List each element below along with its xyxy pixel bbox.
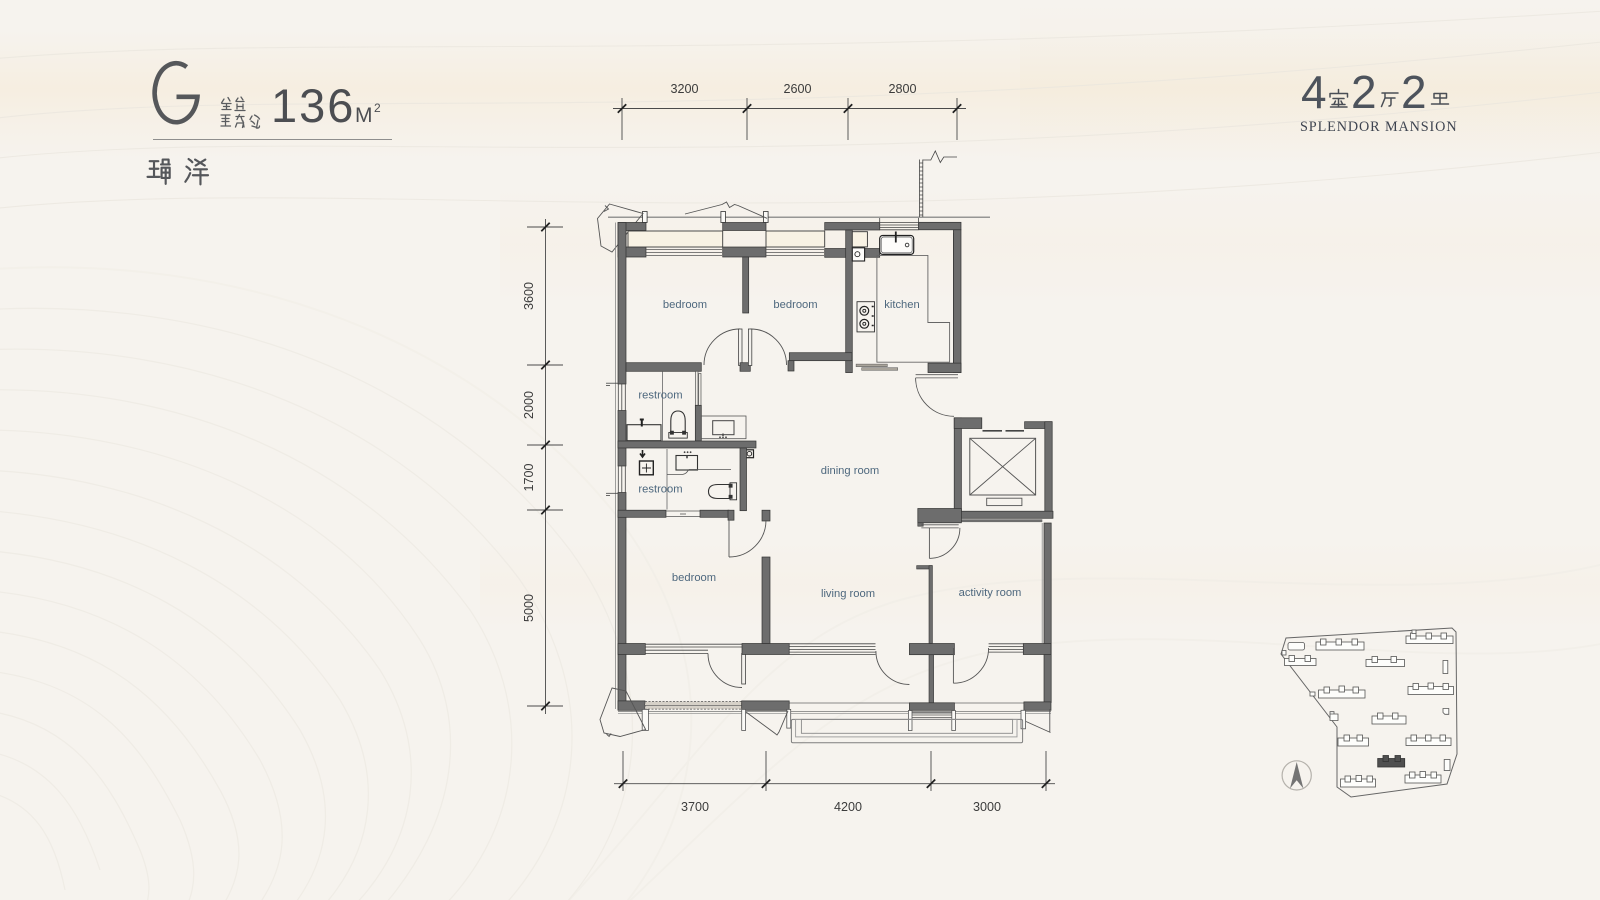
svg-text:1700: 1700 (522, 463, 536, 491)
svg-text:restroom: restroom (638, 390, 682, 402)
svg-text:living room: living room (821, 588, 875, 600)
svg-text:3600: 3600 (522, 282, 536, 310)
svg-text:activity room: activity room (959, 587, 1022, 599)
svg-text:4200: 4200 (834, 800, 862, 814)
svg-text:2800: 2800 (888, 82, 916, 96)
svg-text:2: 2 (1401, 66, 1427, 118)
svg-text:restroom: restroom (638, 484, 682, 496)
svg-text:SPLENDOR MANSION: SPLENDOR MANSION (1300, 119, 1457, 135)
svg-text:3000: 3000 (973, 800, 1001, 814)
svg-text:bedroom: bedroom (672, 572, 716, 584)
svg-text:3200: 3200 (670, 82, 698, 96)
svg-text:bedroom: bedroom (663, 299, 707, 311)
svg-text:5000: 5000 (522, 594, 536, 622)
svg-text:kitchen: kitchen (884, 299, 919, 311)
svg-text:bedroom: bedroom (773, 299, 817, 311)
svg-text:2000: 2000 (522, 391, 536, 419)
svg-text:2600: 2600 (783, 82, 811, 96)
svg-text:dining room: dining room (821, 465, 879, 477)
svg-text:136: 136 (271, 79, 355, 132)
svg-text:3700: 3700 (681, 800, 709, 814)
svg-text:2: 2 (1351, 66, 1377, 118)
svg-text:M: M (355, 104, 373, 127)
svg-text:2: 2 (374, 101, 381, 115)
svg-text:4: 4 (1301, 66, 1327, 118)
